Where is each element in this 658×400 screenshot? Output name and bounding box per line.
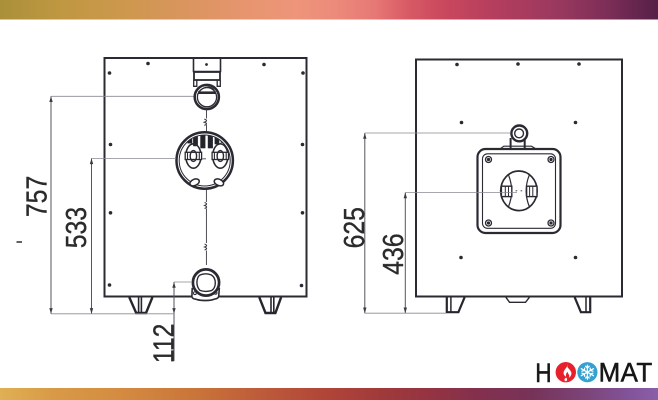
svg-text:H: H <box>535 359 551 388</box>
svg-text:436: 436 <box>377 233 409 274</box>
svg-text:533: 533 <box>60 207 92 248</box>
svg-text:MAT: MAT <box>599 357 653 387</box>
svg-text:112: 112 <box>148 324 180 364</box>
svg-text:757: 757 <box>21 176 53 217</box>
svg-text:625: 625 <box>338 207 370 248</box>
